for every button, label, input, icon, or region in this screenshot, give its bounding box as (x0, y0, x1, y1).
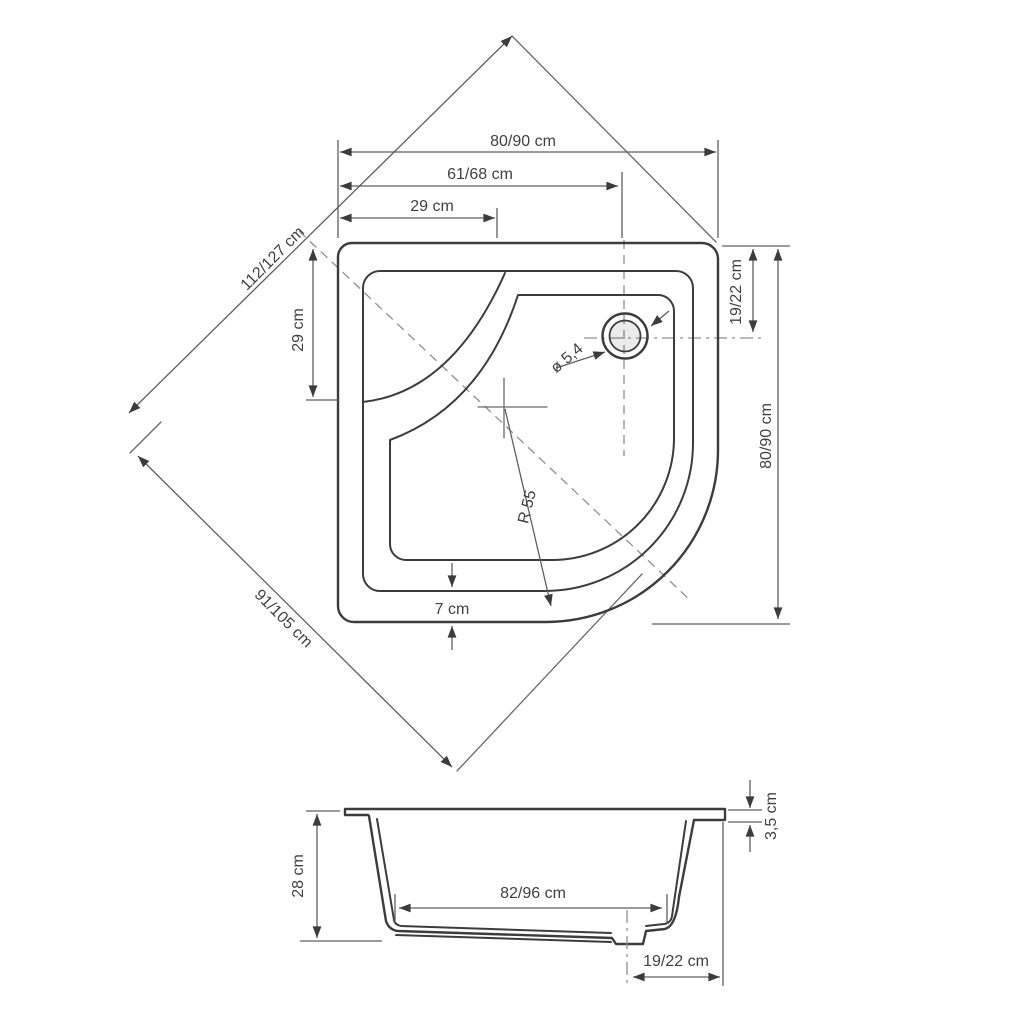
top-view: 80/90 cm 61/68 cm 29 cm 29 cm 112/127 cm (129, 36, 790, 771)
dim-diagonal-back-label: 112/127 cm (238, 224, 308, 294)
tray-top-outlines (338, 243, 718, 622)
dim-corner-y: 29 cm (290, 249, 338, 400)
shower-tray-technical-drawing: 80/90 cm 61/68 cm 29 cm 29 cm 112/127 cm (0, 0, 1024, 1024)
side-view: 28 cm 82/96 cm 3,5 cm 19/22 cm (290, 780, 780, 986)
drain-pointer-arrow (651, 311, 669, 326)
section-left-wall-inner (377, 819, 611, 933)
dim-drain-offset-side: 19/22 cm (627, 822, 723, 986)
dim-diagonal-back: 112/127 cm (129, 36, 512, 413)
dim-corner-x: 29 cm (340, 198, 497, 238)
tray-section-outlines (345, 809, 725, 944)
dim-drain-offset-x-label: 61/68 cm (447, 166, 513, 183)
dim-corner-x-label: 29 cm (410, 198, 454, 215)
dim-drain-offset-y: 19/22 cm (722, 246, 790, 332)
dim-diagonal-front-label: 91/105 cm (251, 586, 316, 651)
dim-width-right-label: 80/90 cm (758, 403, 775, 469)
dim-rim-height: 3,5 cm (728, 780, 780, 852)
front-vertex-extension-line (457, 574, 642, 771)
dim-drain-offset-side-label: 19/22 cm (643, 953, 709, 970)
dim-drain-offset-x: 61/68 cm (340, 166, 622, 238)
dim-front-radius-label: R 55 (515, 488, 540, 525)
construction-lines (130, 36, 766, 771)
dim-width-top-label: 80/90 cm (490, 133, 556, 150)
dim-line (138, 456, 452, 767)
dim-corner-y-label: 29 cm (290, 308, 307, 352)
dim-diagonal-front: 91/105 cm (138, 456, 452, 767)
dim-drain-diameter-label: ø 5,4 (548, 340, 587, 377)
dim-front-edge-label: 7 cm (435, 601, 470, 618)
radius-center-cross (478, 378, 547, 438)
drain-inner-circle (610, 321, 641, 352)
dim-front-radius: R 55 (505, 409, 551, 606)
dim-drain-offset-y-label: 19/22 cm (728, 259, 745, 325)
dim-rim-height-label: 3,5 cm (763, 792, 780, 840)
technical-drawing-page: 80/90 cm 61/68 cm 29 cm 29 cm 112/127 cm (0, 0, 1024, 1024)
tray-outer-edge (338, 243, 718, 622)
dim-height-label: 28 cm (290, 854, 307, 898)
left-vertex-tick (130, 422, 161, 453)
seat-step-edge (363, 273, 505, 402)
dim-front-edge: 7 cm (435, 563, 470, 650)
section-right-wall-inner (646, 821, 686, 926)
dim-line (129, 36, 512, 413)
dim-height: 28 cm (290, 811, 382, 941)
dim-base-width: 82/96 cm (395, 885, 667, 923)
dim-base-width-label: 82/96 cm (500, 885, 566, 902)
diagonal-centerline (299, 231, 691, 601)
